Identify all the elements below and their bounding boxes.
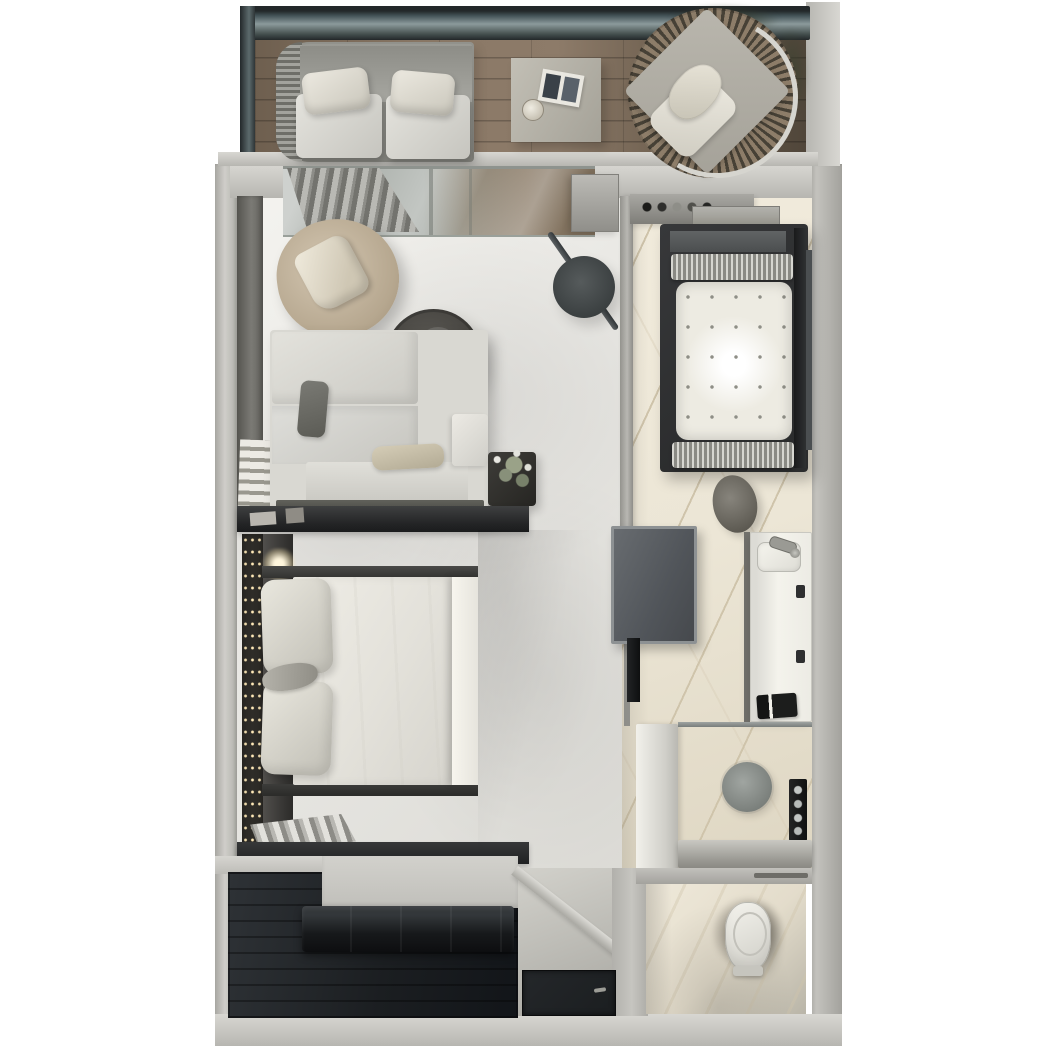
floor-plan-canvas <box>0 0 1054 1056</box>
toilet-base <box>733 966 763 976</box>
wc-section <box>0 0 1054 1056</box>
wc-towel-bar <box>754 873 808 878</box>
toilet-seat-line <box>733 912 767 956</box>
